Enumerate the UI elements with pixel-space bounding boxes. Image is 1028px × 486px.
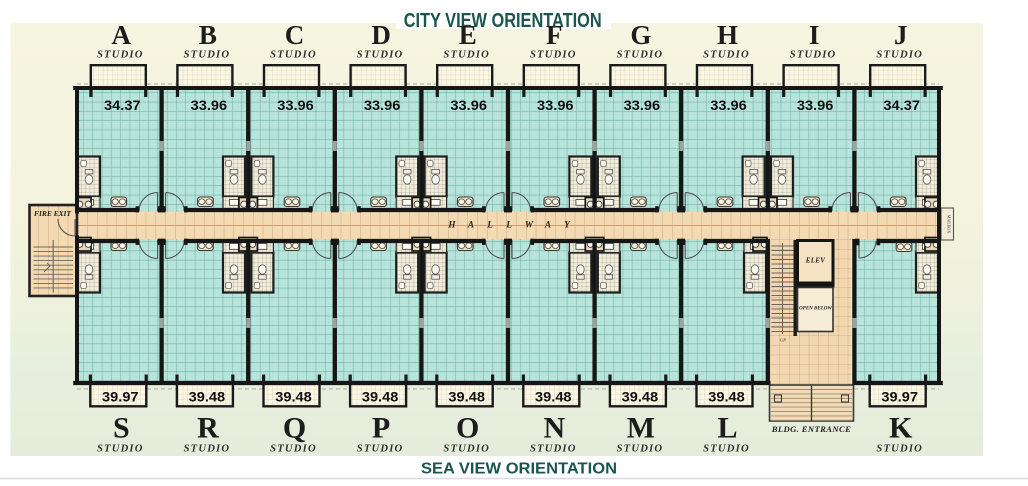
svg-text:P: P xyxy=(372,412,390,445)
svg-text:STUDIO: STUDIO xyxy=(357,444,404,455)
svg-text:A: A xyxy=(112,20,132,50)
svg-text:39.48: 39.48 xyxy=(622,389,659,405)
svg-text:D: D xyxy=(371,20,391,50)
svg-text:39.97: 39.97 xyxy=(881,389,918,405)
svg-text:C: C xyxy=(285,20,305,50)
svg-text:ELEV: ELEV xyxy=(805,257,827,265)
svg-text:J: J xyxy=(894,20,908,50)
svg-text:STUDIO: STUDIO xyxy=(443,444,490,455)
svg-text:STUDIO: STUDIO xyxy=(530,444,577,455)
svg-text:39.97: 39.97 xyxy=(102,389,139,405)
svg-text:O: O xyxy=(456,412,479,445)
svg-text:N: N xyxy=(543,412,565,445)
svg-text:E: E xyxy=(459,20,477,50)
svg-text:F: F xyxy=(546,20,563,50)
svg-text:33.96: 33.96 xyxy=(710,97,747,113)
svg-text:39.48: 39.48 xyxy=(448,389,485,405)
svg-text:33.96: 33.96 xyxy=(191,97,228,113)
svg-text:STUDIO: STUDIO xyxy=(876,50,923,61)
svg-text:39.48: 39.48 xyxy=(362,389,399,405)
svg-text:STUDIO: STUDIO xyxy=(876,444,923,455)
svg-text:R: R xyxy=(197,412,219,445)
svg-text:S: S xyxy=(113,412,130,445)
svg-text:39.48: 39.48 xyxy=(535,389,572,405)
svg-text:STUDIO: STUDIO xyxy=(790,50,837,61)
svg-text:UP: UP xyxy=(780,338,786,343)
svg-text:H: H xyxy=(717,20,738,50)
svg-text:33.96: 33.96 xyxy=(450,97,487,113)
svg-text:I: I xyxy=(809,20,820,50)
svg-text:39.48: 39.48 xyxy=(708,389,745,405)
svg-text:STUDIO: STUDIO xyxy=(617,50,664,61)
svg-text:G: G xyxy=(630,20,651,50)
svg-text:STUDIO: STUDIO xyxy=(270,50,317,61)
svg-text:MAILBOX: MAILBOX xyxy=(947,215,952,234)
svg-text:33.96: 33.96 xyxy=(537,97,574,113)
svg-text:STUDIO: STUDIO xyxy=(703,50,750,61)
svg-text:39.48: 39.48 xyxy=(275,389,312,405)
svg-text:K: K xyxy=(889,412,913,445)
svg-text:B: B xyxy=(199,20,217,50)
svg-text:STUDIO: STUDIO xyxy=(617,444,664,455)
svg-text:34.37: 34.37 xyxy=(883,97,920,113)
svg-text:SEA VIEW ORIENTATION: SEA VIEW ORIENTATION xyxy=(421,461,617,478)
svg-text:STUDIO: STUDIO xyxy=(703,444,750,455)
svg-text:M: M xyxy=(627,412,655,445)
svg-text:34.37: 34.37 xyxy=(104,97,141,113)
svg-text:33.96: 33.96 xyxy=(624,97,661,113)
svg-text:STUDIO: STUDIO xyxy=(357,50,404,61)
svg-text:STUDIO: STUDIO xyxy=(97,444,144,455)
svg-text:CITY VIEW ORIENTATION: CITY VIEW ORIENTATION xyxy=(404,10,602,32)
svg-text:39.48: 39.48 xyxy=(189,389,226,405)
svg-text:STUDIO: STUDIO xyxy=(97,50,144,61)
svg-text:STUDIO: STUDIO xyxy=(184,50,231,61)
svg-text:33.96: 33.96 xyxy=(797,97,834,113)
svg-text:33.96: 33.96 xyxy=(364,97,401,113)
svg-text:STUDIO: STUDIO xyxy=(184,444,231,455)
svg-text:STUDIO: STUDIO xyxy=(270,444,317,455)
svg-text:Q: Q xyxy=(283,412,306,445)
svg-text:L: L xyxy=(717,412,737,445)
svg-text:33.96: 33.96 xyxy=(277,97,314,113)
svg-text:STUDIO: STUDIO xyxy=(443,50,490,61)
svg-text:OPEN BELOW: OPEN BELOW xyxy=(799,307,832,312)
svg-text:BLDG. ENTRANCE: BLDG. ENTRANCE xyxy=(771,424,852,434)
svg-text:FIRE EXIT: FIRE EXIT xyxy=(34,211,72,218)
svg-text:STUDIO: STUDIO xyxy=(530,50,577,61)
